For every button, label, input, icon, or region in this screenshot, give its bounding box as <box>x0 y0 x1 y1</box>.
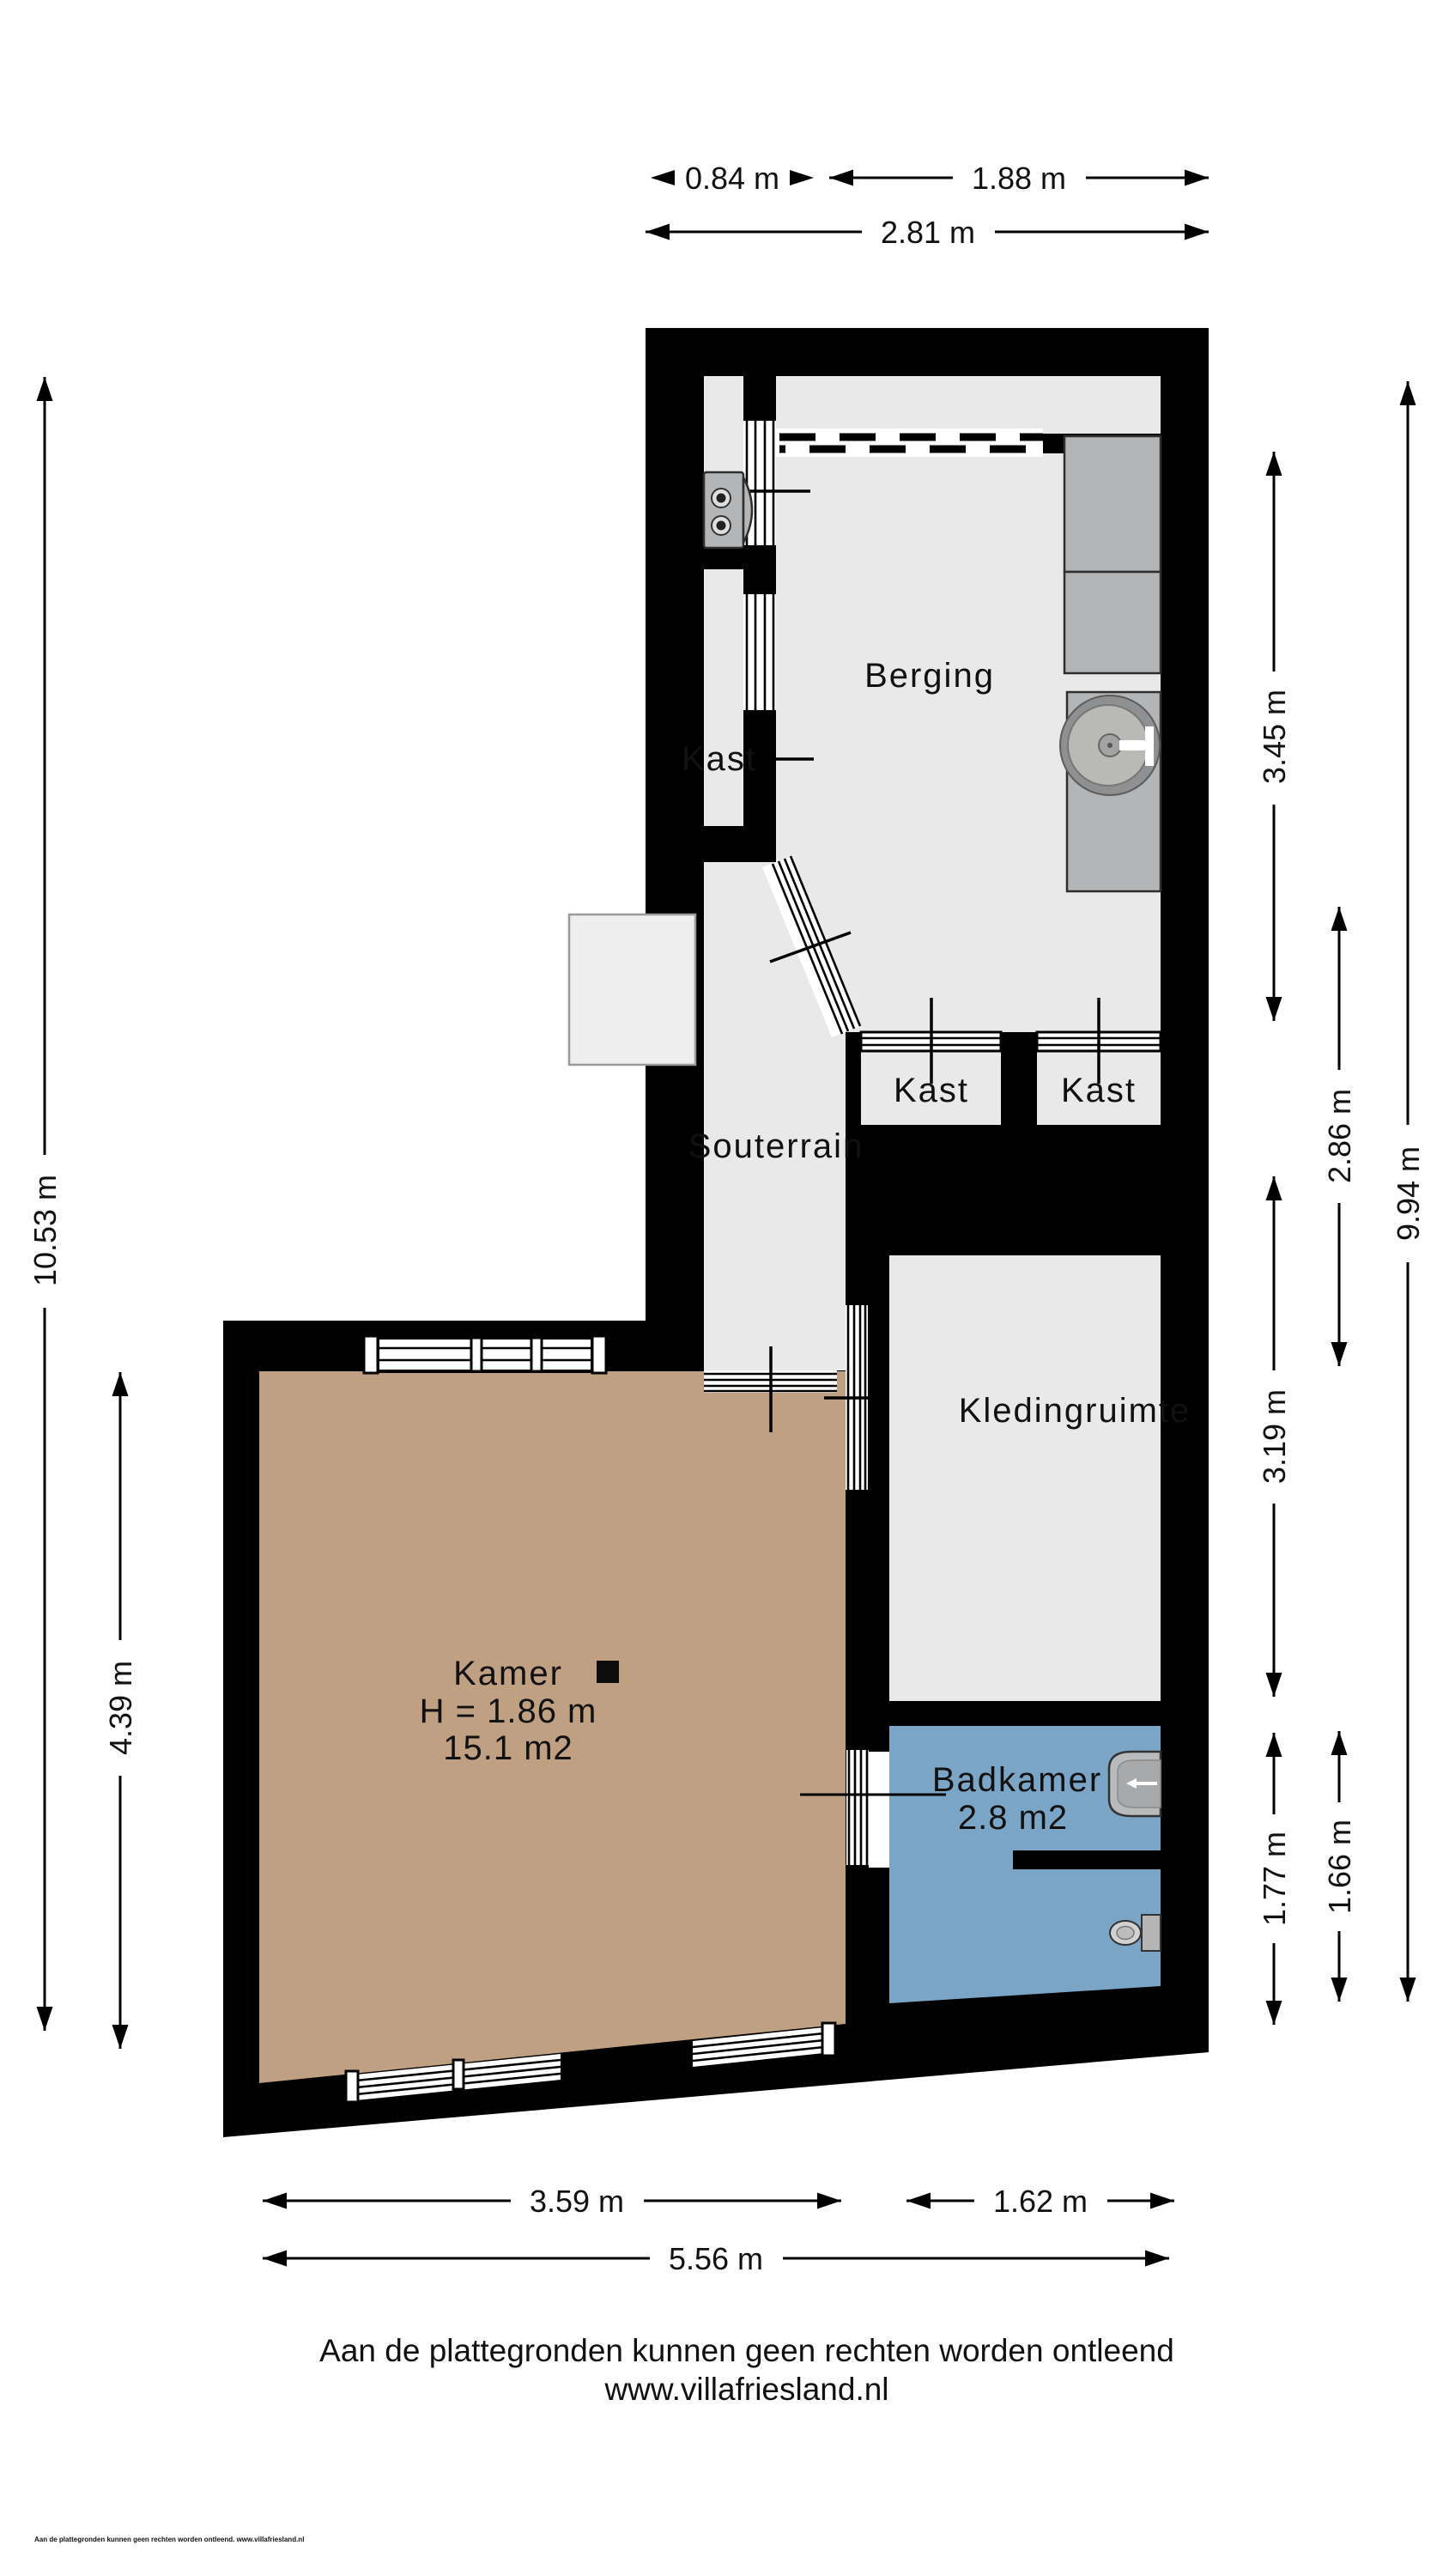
floor-plan-svg: Berging Kast Kast Kast Souterrain Kledin… <box>0 0 1449 2576</box>
room-label-kamer: Kamer <box>453 1655 563 1692</box>
column-marker <box>597 1661 619 1683</box>
washbasin-icon <box>1109 1752 1161 1816</box>
footer-disclaimer: Aan de plattegronden kunnen geen rechten… <box>319 2333 1174 2368</box>
dimension-label: 2.81 m <box>881 215 975 250</box>
badkamer-stub-wall <box>1013 1850 1161 1869</box>
dimension-label: 10.53 m <box>27 1175 63 1286</box>
floor-plan-page: Berging Kast Kast Kast Souterrain Kledin… <box>0 0 1449 2576</box>
window-column-lower <box>743 594 776 710</box>
stairs-landing <box>569 914 695 1065</box>
room-kast-upper <box>704 569 743 826</box>
room-kledingruimte <box>889 1255 1161 1701</box>
dimension-label: 1.62 m <box>993 2184 1088 2219</box>
dimension-right-994: 9.94 m <box>1388 381 1428 2002</box>
room-label-badkamer: Badkamer <box>932 1761 1102 1799</box>
dimension-right-345: 3.45 m <box>1254 452 1294 1021</box>
dimension-label: 1.88 m <box>972 161 1066 196</box>
dimension-bottom-162: 1.62 m <box>906 2181 1174 2219</box>
dimension-right-177: 1.77 m <box>1254 1733 1294 2025</box>
dimension-top-084: 0.84 m <box>651 161 814 196</box>
dimension-bottom-556: 5.56 m <box>263 2239 1169 2276</box>
dimension-label: 1.77 m <box>1257 1832 1292 1926</box>
room-label-berging: Berging <box>864 657 995 695</box>
dimension-label: 9.94 m <box>1391 1146 1426 1241</box>
dimension-right-166: 1.66 m <box>1319 1731 1359 2002</box>
dimension-left-439: 4.39 m <box>100 1372 140 2049</box>
dimension-right-319: 3.19 m <box>1254 1176 1294 1697</box>
room-label-kast-closet-right: Kast <box>1061 1072 1137 1109</box>
badkamer-area: 2.8 m2 <box>958 1799 1068 1837</box>
dimension-bottom-359: 3.59 m <box>263 2181 841 2219</box>
room-label-kledingruimte: Kledingruimte <box>959 1392 1191 1430</box>
dimension-label: 5.56 m <box>669 2241 763 2276</box>
wardrobe-icon <box>1064 436 1161 673</box>
dimension-label: 0.84 m <box>685 161 779 196</box>
footer-website: www.villafriesland.nl <box>603 2372 888 2407</box>
dimension-label: 3.19 m <box>1257 1389 1292 1484</box>
dimension-label: 3.45 m <box>1257 690 1292 784</box>
dimension-left-1053: 10.53 m <box>25 377 64 2031</box>
dashed-opening <box>776 428 1043 457</box>
dimension-label: 1.66 m <box>1322 1820 1357 1914</box>
dimension-label: 2.86 m <box>1322 1089 1357 1183</box>
dimension-label: 4.39 m <box>103 1661 138 1755</box>
room-label-kast-upper: Kast <box>682 740 757 778</box>
boiler-icon <box>704 472 752 548</box>
dimension-label: 3.59 m <box>530 2184 624 2219</box>
dimension-top-281: 2.81 m <box>646 212 1209 250</box>
room-label-souterrain: Souterrain <box>688 1127 864 1165</box>
room-label-kast-closet-left: Kast <box>894 1072 969 1109</box>
room-berging-top-strip <box>776 376 1161 434</box>
footer-small-print: Aan de plattegronden kunnen geen rechten… <box>34 2536 304 2543</box>
kamer-ceiling-height: H = 1.86 m <box>420 1692 597 1730</box>
kamer-area: 15.1 m2 <box>443 1729 573 1767</box>
badkamer-door <box>846 1750 889 1868</box>
window-kamer-top <box>364 1336 606 1373</box>
round-sink-icon <box>1060 692 1161 891</box>
dimension-top-188: 1.88 m <box>829 158 1209 196</box>
dimension-right-286: 2.86 m <box>1319 907 1359 1366</box>
